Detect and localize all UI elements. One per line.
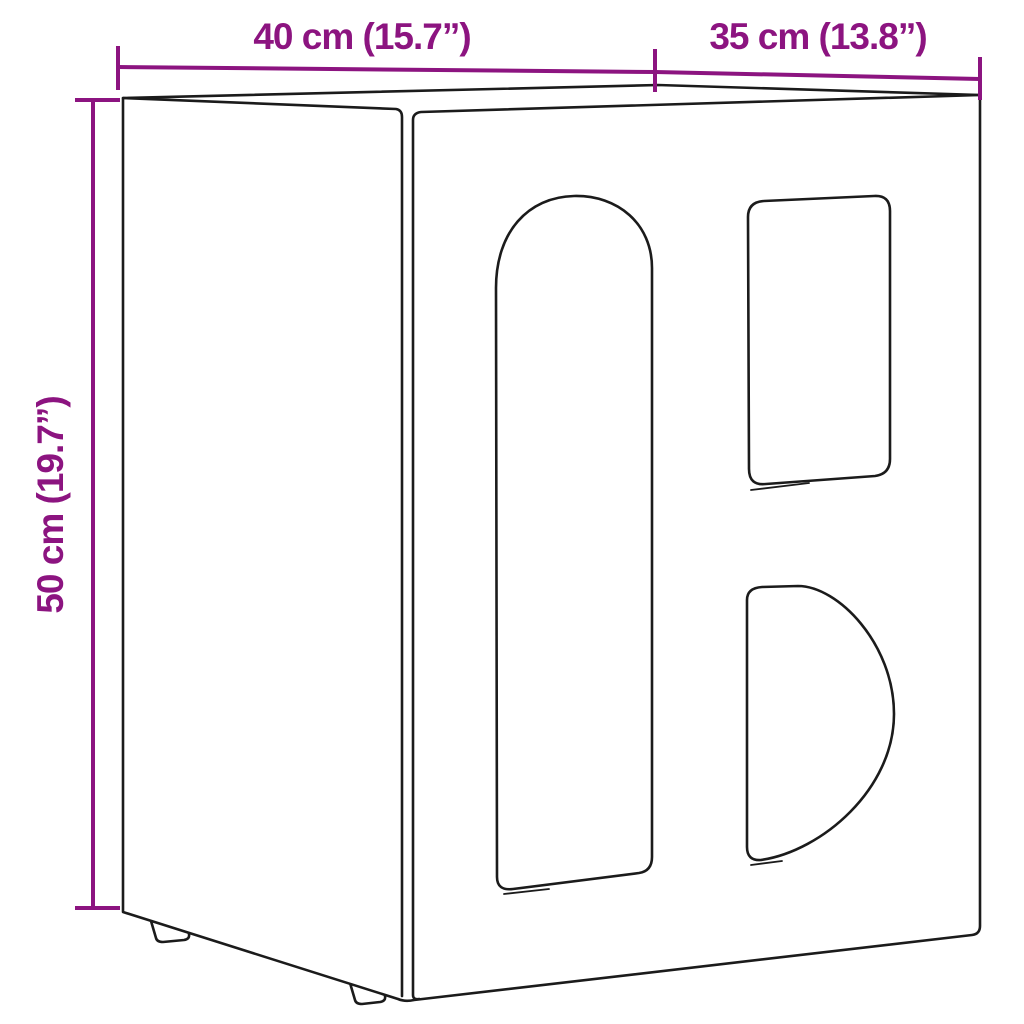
width-dimension-line	[118, 67, 655, 72]
cutout-arch-opening	[496, 196, 652, 889]
depth-dimension-label: 35 cm (13.8”)	[709, 16, 926, 57]
width-dimension: 40 cm (15.7”)	[118, 16, 655, 92]
furniture-dimension-diagram: 40 cm (15.7”) 35 cm (13.8”) 50 cm (19.7”…	[0, 0, 1024, 1024]
height-dimension: 50 cm (19.7”)	[30, 100, 120, 908]
width-dimension-label: 40 cm (15.7”)	[253, 16, 470, 57]
cutout-rounded-rect-opening	[748, 196, 890, 484]
height-dimension-label: 50 cm (19.7”)	[30, 396, 71, 613]
product-outline	[123, 85, 980, 1004]
diagram-canvas: 40 cm (15.7”) 35 cm (13.8”) 50 cm (19.7”…	[0, 0, 1024, 1024]
depth-dimension-line	[655, 72, 980, 79]
